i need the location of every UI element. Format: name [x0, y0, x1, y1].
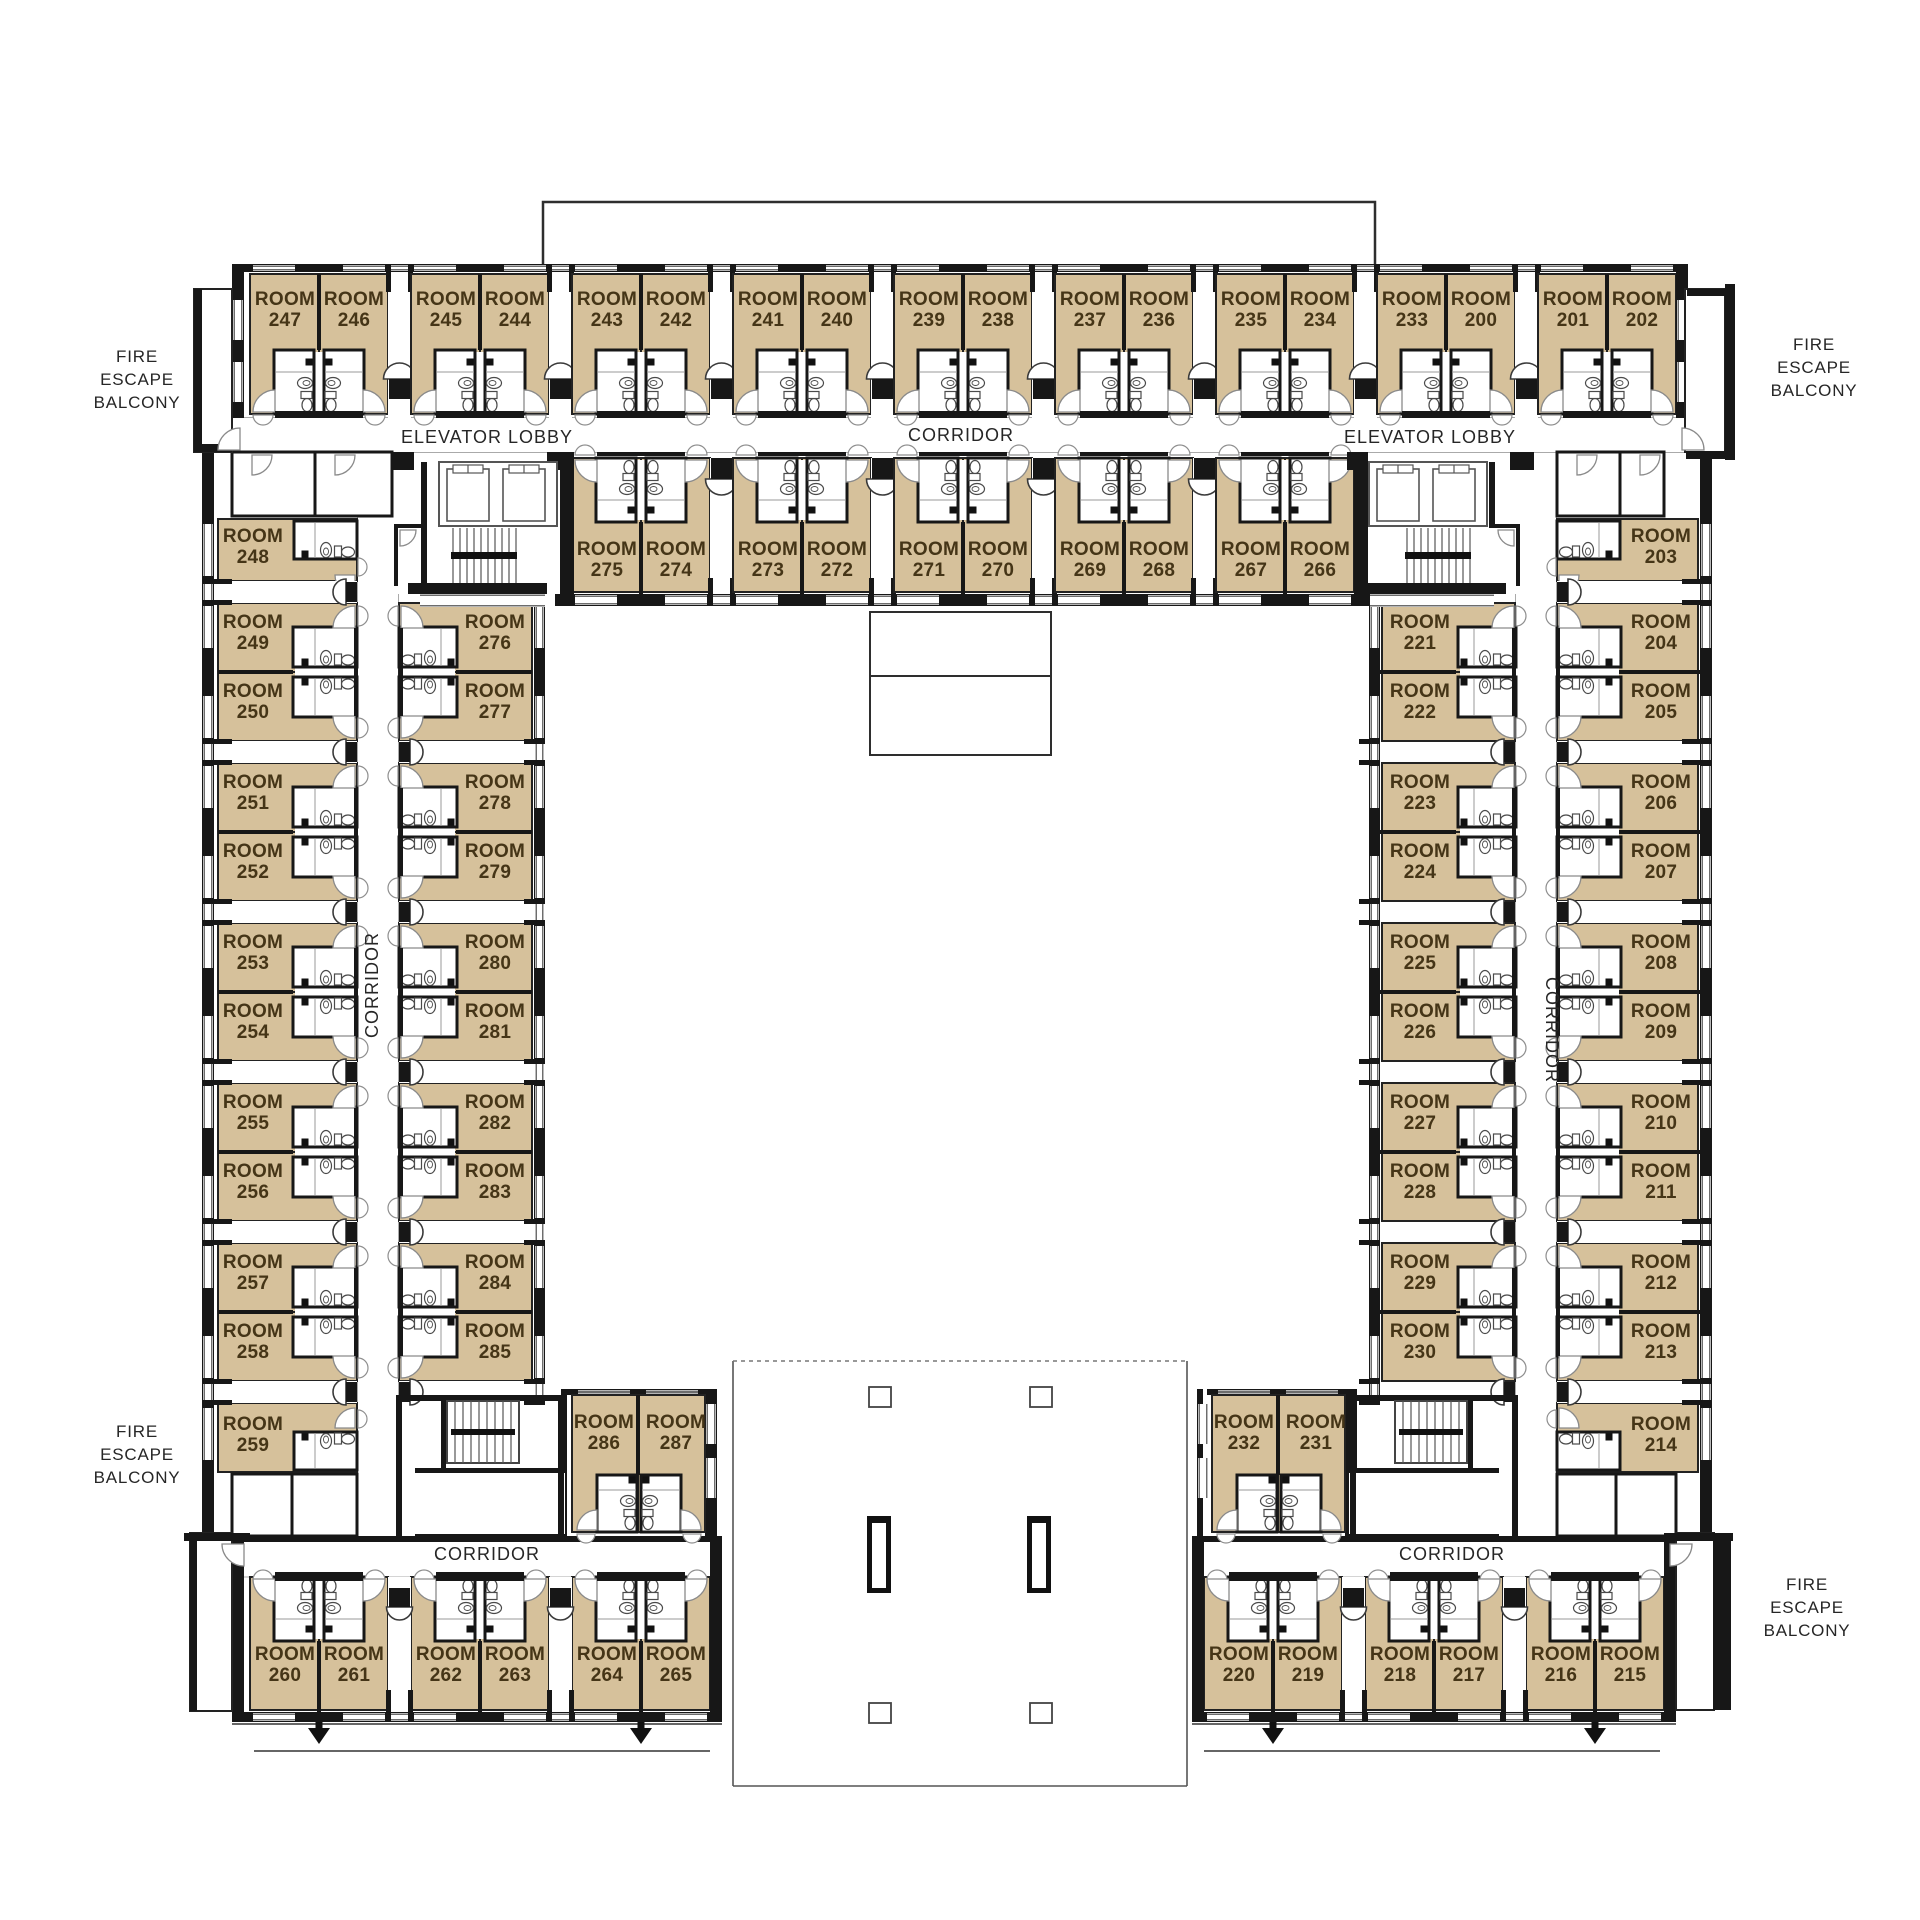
svg-text:CORRIDOR: CORRIDOR: [434, 1544, 540, 1564]
svg-text:CORRIDOR: CORRIDOR: [1399, 1544, 1505, 1564]
svg-text:CORRIDOR: CORRIDOR: [908, 425, 1014, 445]
svg-text:CORRIDOR: CORRIDOR: [362, 932, 382, 1038]
svg-text:CORRIDOR: CORRIDOR: [1542, 977, 1562, 1083]
svg-text:ELEVATOR LOBBY: ELEVATOR LOBBY: [401, 427, 573, 447]
svg-text:ELEVATOR LOBBY: ELEVATOR LOBBY: [1344, 427, 1516, 447]
